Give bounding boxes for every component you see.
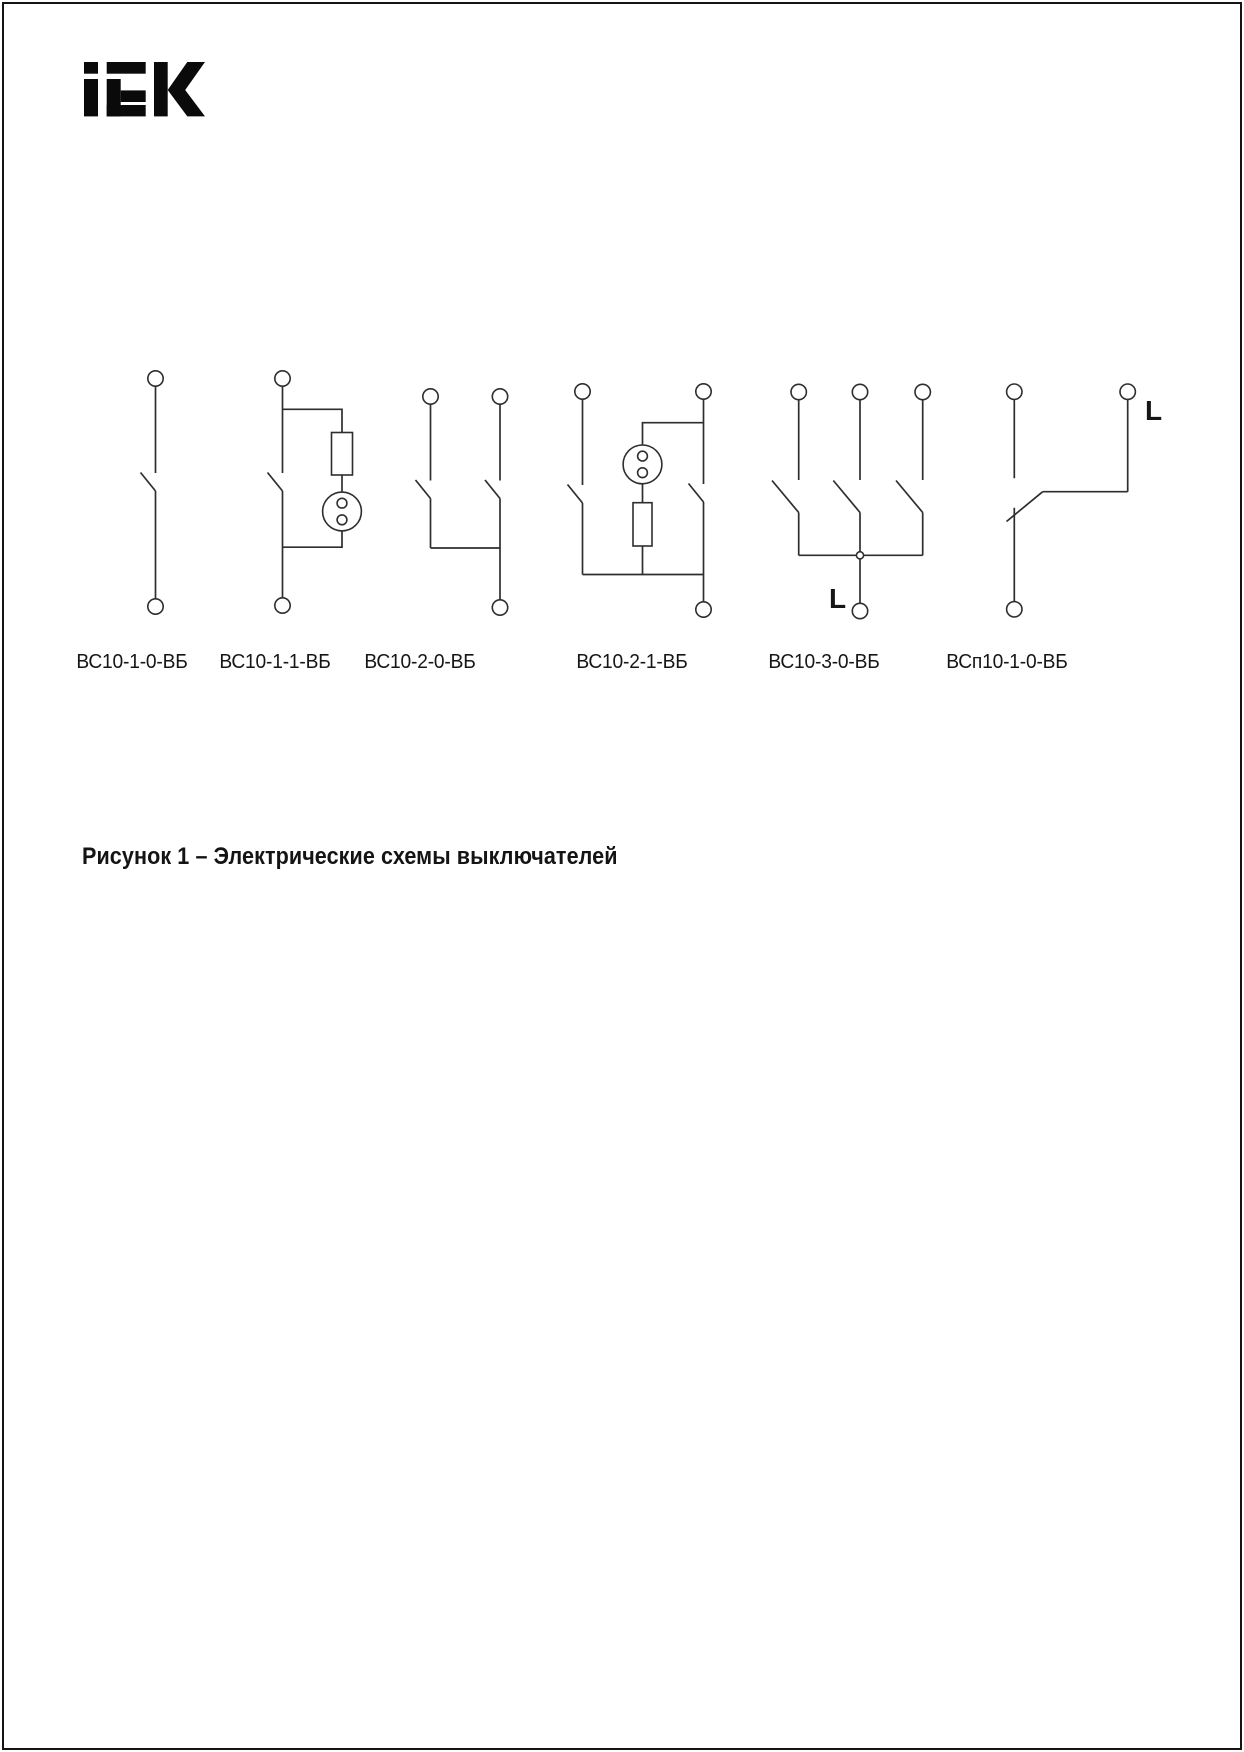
lamp-electrode [638, 468, 648, 478]
schematic-vsp10-1-0 [1007, 384, 1136, 617]
terminal [696, 602, 711, 617]
diagram-label-vs10-3-0: ВС10-3-0-ВБ [768, 651, 879, 674]
junction-node [856, 552, 863, 559]
switch-blade [268, 473, 283, 492]
terminal [492, 600, 507, 615]
terminal [275, 371, 290, 386]
diagram-label-vs10-1-0: ВС10-1-0-ВБ [76, 651, 187, 674]
resistor [332, 433, 353, 476]
switch-blade [416, 480, 431, 499]
line-label-L-changeover: L [1145, 397, 1162, 425]
terminal [1007, 384, 1022, 399]
terminal [852, 384, 867, 399]
diagram-label-vsp10-1-0: ВСп10-1-0-ВБ [946, 651, 1067, 674]
terminal [148, 371, 163, 386]
lamp-electrode [337, 515, 347, 525]
terminal [1007, 602, 1022, 617]
terminal [696, 384, 711, 399]
switch-blade [772, 481, 799, 513]
switch-blade [568, 485, 583, 504]
lamp-electrode [337, 498, 347, 508]
schematic-vs10-1-1 [268, 371, 362, 613]
line-label-L-three-gang: L [829, 585, 846, 613]
switch-blade [1007, 492, 1043, 522]
diagram-label-vs10-2-1: ВС10-2-1-ВБ [576, 651, 687, 674]
manual-page: ВС10-1-0-ВБ ВС10-1-1-ВБ ВС10-2-0-ВБ ВС10… [0, 0, 1244, 1752]
terminal [915, 384, 930, 399]
terminal [575, 384, 590, 399]
schematic-vs10-1-0 [141, 371, 164, 614]
terminal [492, 389, 507, 404]
figure-caption: Рисунок 1 – Электрические схемы выключат… [82, 843, 618, 871]
terminal [275, 598, 290, 613]
schematic-vs10-2-0 [416, 389, 508, 615]
switch-blade [689, 484, 704, 503]
switch-blade [896, 481, 923, 513]
diagram-label-vs10-1-1: ВС10-1-1-ВБ [219, 651, 330, 674]
lamp-electrode [638, 451, 648, 461]
terminal [423, 389, 438, 404]
terminal [1120, 384, 1135, 399]
resistor [633, 503, 652, 546]
switch-blade [833, 481, 860, 513]
terminal [148, 599, 163, 614]
terminal [852, 603, 867, 618]
switch-blade [141, 473, 156, 492]
switch-blade [485, 480, 500, 499]
schematic-vs10-2-1 [568, 384, 712, 617]
schematic-vs10-3-0 [772, 384, 930, 618]
terminal [791, 384, 806, 399]
diagram-label-vs10-2-0: ВС10-2-0-ВБ [364, 651, 475, 674]
schematics-canvas [0, 0, 1244, 1752]
